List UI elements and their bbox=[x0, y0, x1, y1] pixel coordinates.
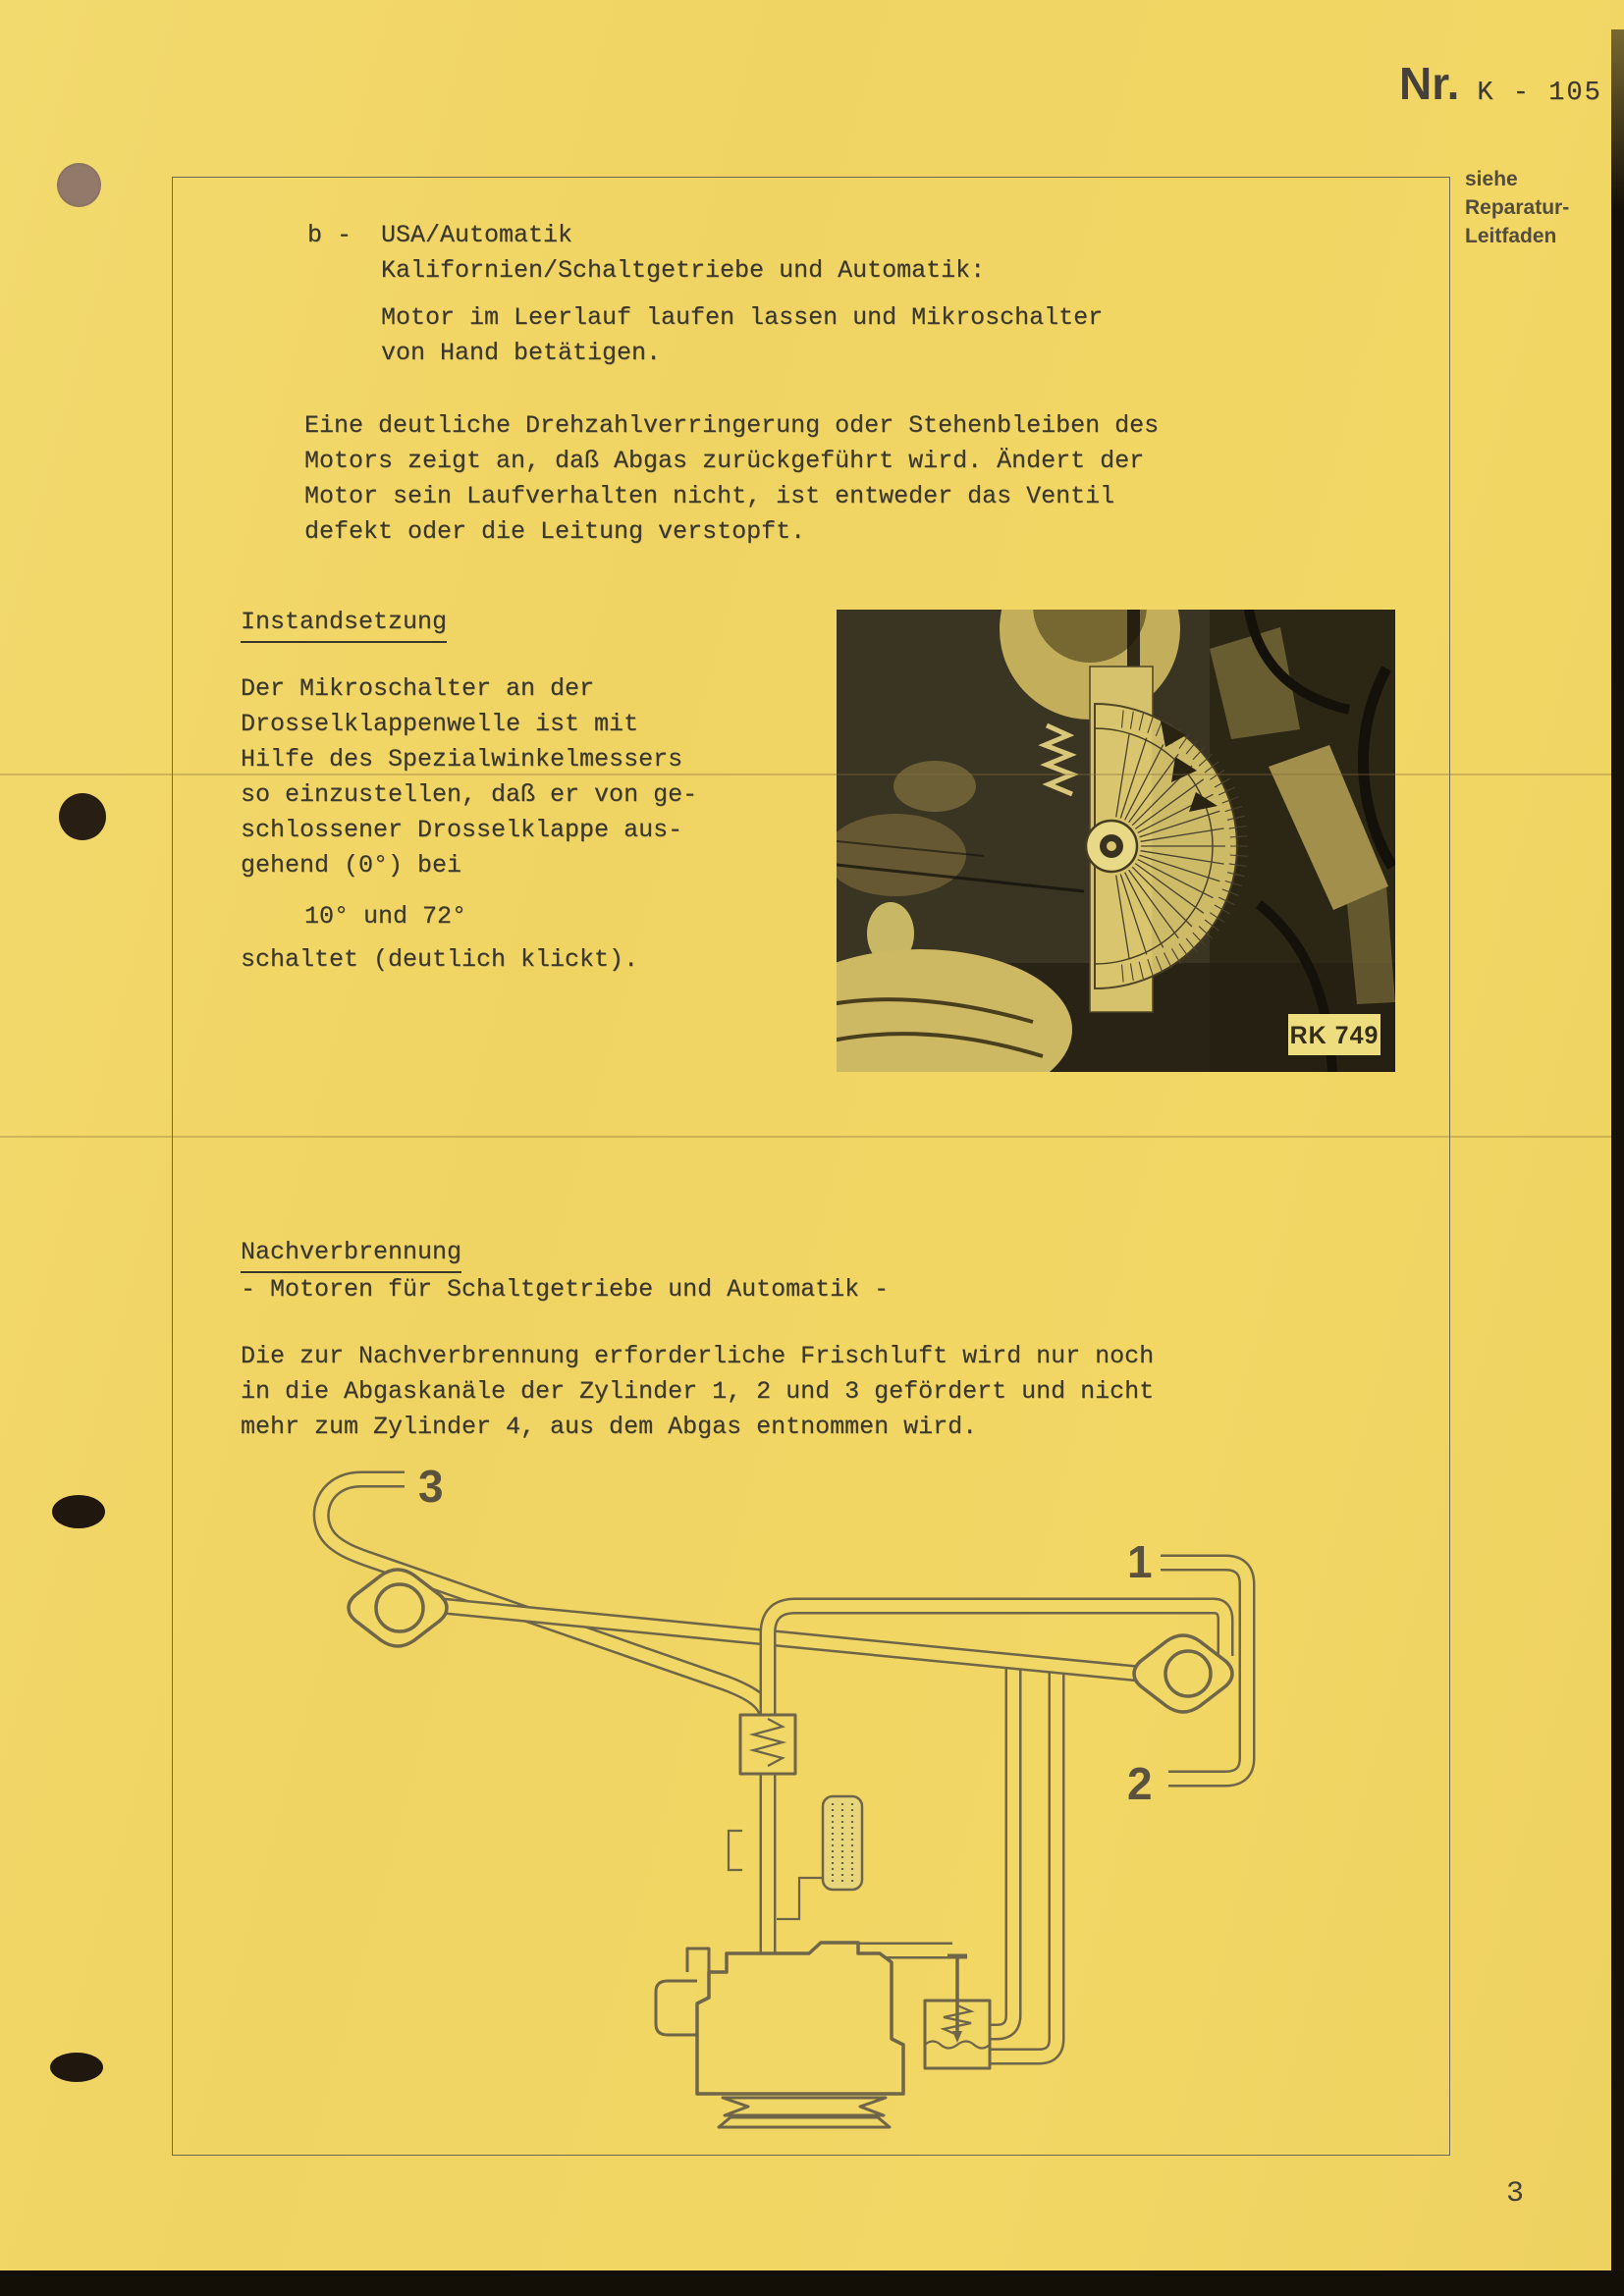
diagram-label-3: 3 bbox=[418, 1461, 444, 1512]
diagram-label-1: 1 bbox=[1127, 1536, 1153, 1587]
doc-number-prefix: Nr. bbox=[1399, 57, 1459, 110]
pulley-lower bbox=[719, 2117, 890, 2127]
pulley-upper bbox=[723, 2098, 886, 2115]
protractor-hub-pin bbox=[1107, 841, 1116, 851]
engine-photo: RK 749 bbox=[837, 610, 1395, 1072]
section-b-result: Eine deutliche Drehzahlverringerung oder… bbox=[304, 408, 1159, 550]
doc-number: Nr. K - 105 bbox=[1399, 57, 1602, 110]
air-injection-diagram: 3 1 2 bbox=[265, 1458, 1404, 2145]
repair-heading-wrap: Instandsetzung bbox=[241, 605, 447, 643]
section-b-title-2: Kalifornien/Schaltgetriebe und Automatik… bbox=[381, 253, 985, 289]
pump-mount-ear bbox=[656, 1981, 697, 2035]
item-label: b - bbox=[307, 218, 352, 253]
channel-step bbox=[729, 1831, 742, 1870]
section-b-title-1: USA/Automatik bbox=[381, 218, 572, 253]
engine-part-left2 bbox=[893, 761, 976, 812]
page-number: 3 bbox=[1506, 2177, 1524, 2211]
section-b-instruction: Motor im Leerlauf laufen lassen und Mikr… bbox=[381, 300, 1103, 371]
scanned-service-bulletin-page: Nr. K - 105 siehe Reparatur- Leitfaden b… bbox=[0, 0, 1624, 2296]
repair-body: Der Mikroschalter an der Drosselklappenw… bbox=[241, 671, 697, 883]
branch-pipe-2-core bbox=[990, 1664, 1056, 2056]
check-valve-left-port bbox=[376, 1584, 423, 1631]
afterburn-subheading: - Motoren für Schaltgetriebe und Automat… bbox=[241, 1272, 889, 1308]
repair-closing: schaltet (deutlich klickt). bbox=[241, 942, 638, 978]
scan-edge-bottom bbox=[0, 2270, 1624, 2296]
branch-pipe-2 bbox=[990, 1664, 1056, 2056]
cross-pipe-core bbox=[432, 1605, 1149, 1675]
photo-label: RK 749 bbox=[1290, 1022, 1380, 1049]
fold-crease-upper bbox=[0, 774, 1624, 775]
pipe-3-core bbox=[321, 1479, 768, 1956]
check-valve-right-port bbox=[1165, 1651, 1211, 1696]
filter-bracket bbox=[777, 1878, 823, 1919]
punch-hole-1 bbox=[57, 163, 101, 207]
afterburn-heading: Nachverbrennung bbox=[241, 1235, 461, 1273]
punch-hole-3 bbox=[52, 1495, 105, 1528]
scan-edge-right bbox=[1611, 29, 1624, 2296]
punch-hole-2 bbox=[59, 793, 106, 840]
branch-pipe-1-core bbox=[990, 1659, 1013, 2032]
punch-hole-4 bbox=[50, 2053, 103, 2082]
switch-angles: 10° und 72° bbox=[304, 899, 466, 934]
doc-number-value: K - 105 bbox=[1477, 79, 1601, 108]
pump-neck bbox=[687, 1949, 709, 1972]
afterburn-body: Die zur Nachverbrennung erforderliche Fr… bbox=[241, 1339, 1154, 1445]
margin-note: siehe Reparatur- Leitfaden bbox=[1465, 165, 1569, 250]
fold-crease-lower bbox=[0, 1136, 1624, 1138]
repair-heading: Instandsetzung bbox=[241, 605, 447, 643]
afterburn-heading-wrap: Nachverbrennung bbox=[241, 1235, 461, 1273]
pipe-3 bbox=[321, 1479, 768, 1956]
air-pump-body bbox=[697, 1943, 903, 2094]
diagram-label-2: 2 bbox=[1127, 1758, 1153, 1809]
